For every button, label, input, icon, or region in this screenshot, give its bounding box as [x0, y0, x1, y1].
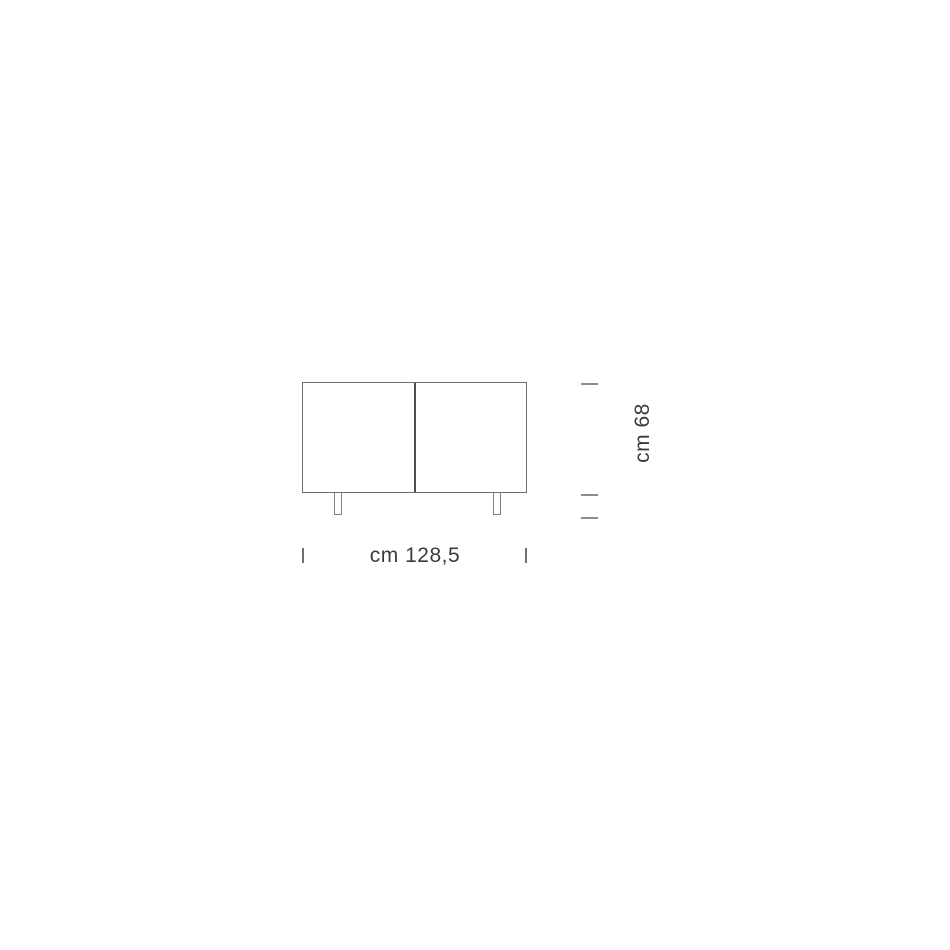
height-dimension-label: cm 68: [631, 403, 655, 463]
cabinet-leg-right: [493, 493, 501, 515]
width-dim-tick-right: [525, 548, 527, 563]
width-dimension-label: cm 128,5: [370, 544, 460, 568]
width-dim-tick-left: [302, 548, 304, 563]
height-dim-tick-top: [581, 383, 598, 385]
cabinet-leg-left: [334, 493, 342, 515]
cabinet-door-divider-line: [414, 383, 416, 492]
height-dim-tick-leg-bottom: [581, 517, 598, 519]
height-dim-tick-body-bottom: [581, 494, 598, 496]
cabinet-body-outline: [302, 382, 527, 493]
dimension-diagram-canvas: cm 68 cm 128,5: [0, 0, 950, 950]
